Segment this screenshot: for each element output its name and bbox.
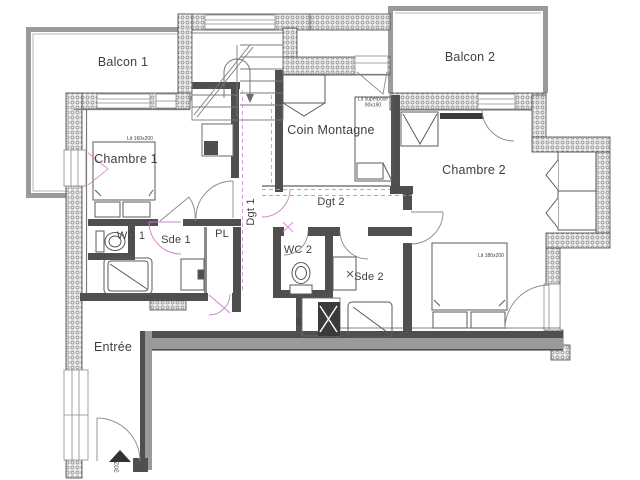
- room-label-chambre-1: Chambre 1: [94, 152, 158, 166]
- unit-number-label: 302: [114, 461, 121, 472]
- bed-label-chambre-2: Lit 180x200: [478, 253, 504, 259]
- door-sde2: [340, 231, 368, 259]
- bed-label-chambre-1: Lit 160x200: [127, 136, 153, 142]
- balcony-1-border: [26, 27, 180, 198]
- room-label-wc-1: WC 1: [117, 230, 145, 242]
- floor-plan: Balcon 1 Balcon 2 Chambre 1 Coin Montagn…: [0, 0, 640, 480]
- window-stair-top: [205, 15, 275, 29]
- radiator-chambre2: [440, 113, 483, 119]
- door-chambre2: [411, 212, 443, 244]
- sink-sde1-icon: [181, 259, 204, 290]
- window-coin-top: [355, 56, 388, 75]
- bunk-bed-coin-montagne: [355, 97, 392, 181]
- room-label-pl: PL: [215, 228, 229, 240]
- window-chambre1-top: [97, 94, 150, 108]
- room-label-chambre-2: Chambre 2: [442, 163, 506, 177]
- room-label-sde-2: Sde 2: [354, 271, 384, 283]
- room-label-dgt-1: Dgt 1: [245, 198, 257, 225]
- room-label-ml: ML: [296, 316, 303, 325]
- french-door-chambre2: [544, 284, 560, 330]
- door-coin-montagne: [262, 189, 290, 217]
- window-entree-left: [64, 370, 88, 460]
- washing-machine-icon: [302, 298, 340, 336]
- bunk-bed-label: Lit superposé 90x190: [358, 98, 388, 109]
- sink-sde2-icon: [333, 257, 356, 290]
- wardrobe-coin-montagne: [283, 75, 325, 116]
- window-balcon2: [478, 94, 515, 109]
- room-label-dgt-2: Dgt 2: [317, 196, 344, 208]
- door-dgt1-end: [196, 181, 233, 218]
- floor-plan-drawing: [0, 0, 640, 480]
- toilet-wc2-icon: [290, 263, 312, 295]
- cabinet-chambre2: [401, 112, 483, 146]
- bunk-bed-label-line2: 90x190: [358, 103, 388, 109]
- door-chambre1: [160, 197, 195, 221]
- window-top-2: [156, 94, 176, 108]
- stair-direction-arrow-icon: [246, 94, 254, 103]
- room-label-coin-montagne: Coin Montagne: [287, 123, 374, 137]
- dgt1-cupboard: [202, 124, 233, 156]
- window-chambre1-left: [64, 150, 86, 186]
- shower-sde1-icon: [104, 258, 152, 294]
- room-label-entree: Entrée: [94, 340, 132, 354]
- room-label-wc-2: WC 2: [284, 244, 312, 256]
- door-entree-hall: [209, 294, 230, 315]
- wardrobe-alcove-chambre2: [546, 152, 596, 230]
- door-balcony-chambre2: [482, 109, 514, 141]
- room-label-balcon-2: Balcon 2: [445, 50, 495, 64]
- entry-arrow-icon: [109, 450, 131, 462]
- room-label-balcon-1: Balcon 1: [98, 55, 148, 69]
- door-french-chambre2: [505, 285, 549, 329]
- room-label-sde-1: Sde 1: [161, 234, 191, 246]
